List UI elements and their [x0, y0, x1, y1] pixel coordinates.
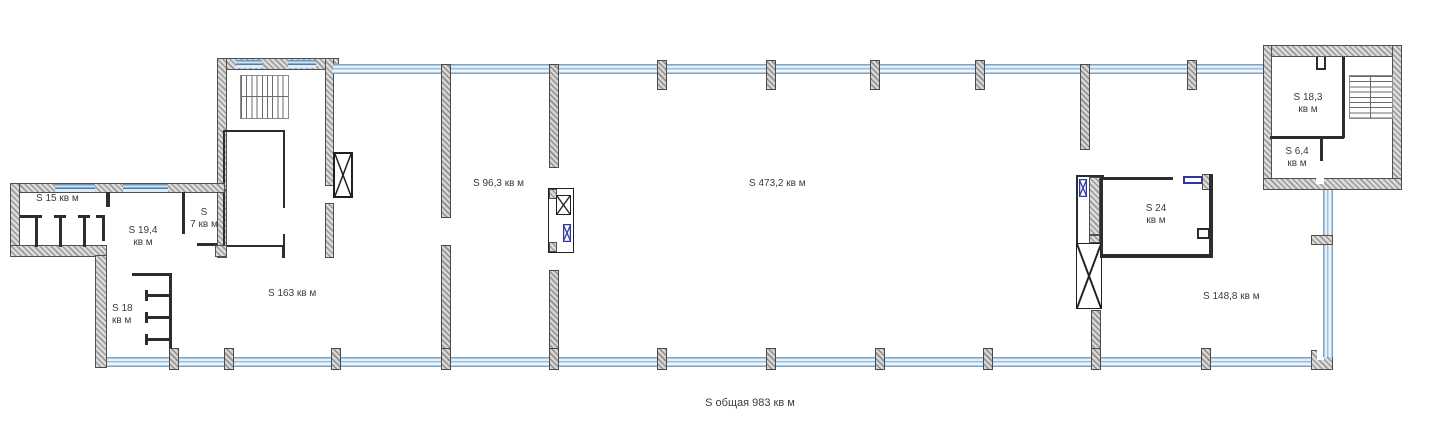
vestibule-door-opening — [281, 208, 287, 234]
vent-shaft-icon — [333, 152, 353, 198]
curtain-wall-bottom — [107, 357, 1333, 367]
room-label-s96: S 96,3 кв м — [473, 178, 524, 190]
wall-s18-top — [132, 273, 172, 276]
wall-rightblock-divider — [1342, 57, 1345, 138]
wall-wing-top — [10, 183, 225, 193]
column-bottom-2 — [224, 348, 234, 370]
wall-s7-corner — [215, 245, 227, 257]
column-bottom-9 — [983, 348, 993, 370]
stairs-left-landing-line — [241, 96, 288, 97]
room-label-s7: S 7 кв м — [188, 207, 220, 231]
room-label-s19-line1: S 19,4 — [118, 225, 168, 237]
stairs-left — [241, 76, 288, 118]
column-top-1 — [657, 60, 667, 90]
wall-s7-bottom — [197, 243, 217, 246]
wall-rightblock-top — [1263, 45, 1402, 57]
window-wing-1 — [55, 184, 95, 192]
niche-s24 — [1197, 228, 1210, 239]
plumbing-riser-icon — [1079, 179, 1087, 197]
partition-c-upper — [1080, 64, 1090, 150]
curtain-wall-right — [1323, 190, 1333, 357]
vestibule-wall-stub — [282, 246, 285, 258]
shaft-corner-hatch-bottom — [549, 242, 557, 252]
wall-s183-bottom — [1270, 136, 1344, 139]
stall-partition-3 — [83, 215, 86, 247]
room-label-s473: S 473,2 кв м — [749, 178, 806, 190]
wall-stairblock-right-lower — [325, 203, 334, 258]
column-bottom-6 — [657, 348, 667, 370]
column-s24block-cap — [1089, 235, 1100, 243]
column-top-2 — [766, 60, 776, 90]
column-bottom-4 — [441, 348, 451, 370]
window-stairblock-1 — [236, 60, 262, 68]
partition-a-upper — [441, 64, 451, 218]
room-label-s18-line1: S 18 — [112, 303, 133, 315]
column-top-3 — [870, 60, 880, 90]
room-label-s18: S 18 кв м — [112, 303, 133, 327]
room-label-s7-line2: 7 кв м — [188, 219, 220, 231]
stall-partition-1 — [35, 215, 38, 247]
column-bottom-5 — [549, 348, 559, 370]
column-bottom-8 — [875, 348, 885, 370]
wall-s24block-left — [1076, 175, 1078, 245]
room-label-s64-line2: кв м — [1272, 158, 1322, 170]
column-bottom-1 — [169, 348, 179, 370]
room-label-s15: S 15 кв м — [36, 193, 79, 205]
vestibule-room — [223, 130, 285, 247]
stairs-right — [1350, 76, 1392, 118]
wall-rightblock-left — [1263, 45, 1272, 190]
room-label-s24: S 24 кв м — [1125, 203, 1187, 227]
stall-partition-2 — [59, 215, 62, 247]
column-bottom-10 — [1091, 348, 1101, 370]
wall-rightblock-right — [1392, 45, 1402, 190]
door-notch-rightblock-bottom — [1316, 178, 1324, 184]
wall-rightblock-bottom — [1263, 178, 1402, 190]
floor-plan-canvas: S 15 кв м S 19,4 кв м S 7 кв м S 18 кв м… — [0, 0, 1443, 432]
total-area-label: S общая 983 кв м — [600, 397, 900, 409]
curtain-wall-top — [333, 64, 1263, 74]
window-stairblock-2 — [288, 60, 316, 68]
column-top-4 — [975, 60, 985, 90]
column-bottom-3 — [331, 348, 341, 370]
stairs-right-landing-line — [1370, 76, 1371, 118]
stall-right-wall — [102, 215, 105, 241]
room-label-s19: S 19,4 кв м — [118, 225, 168, 249]
service-shaft-middle — [548, 188, 574, 253]
room-label-s18-line2: кв м — [112, 315, 133, 327]
wall-s24-left — [1100, 177, 1103, 257]
room-label-s24-line1: S 24 — [1125, 203, 1187, 215]
niche-rightblock-top — [1316, 57, 1326, 70]
room-label-s183-line1: S 18,3 — [1276, 92, 1340, 104]
vent-shaft-icon — [556, 195, 571, 215]
room-label-s163: S 163 кв м — [268, 288, 316, 300]
room-label-s7-line1: S — [188, 207, 220, 219]
window-s24 — [1183, 176, 1203, 184]
wall-s24-top — [1100, 177, 1173, 180]
wall-s24-bottom — [1100, 254, 1213, 258]
room-label-s64: S 6,4 кв м — [1272, 146, 1322, 170]
wall-s24-right — [1209, 174, 1213, 258]
s18-stall-3 — [145, 338, 170, 341]
column-s24block — [1089, 177, 1100, 235]
column-bottom-7 — [766, 348, 776, 370]
plumbing-riser-icon — [563, 224, 571, 242]
vent-shaft-icon — [1076, 243, 1102, 309]
wall-stub-s15-s19 — [106, 192, 110, 207]
wall-west-lower — [95, 255, 107, 368]
partition-b-upper — [549, 64, 559, 168]
room-label-s19-line2: кв м — [118, 237, 168, 249]
column-bottom-11 — [1201, 348, 1211, 370]
column-top-5 — [1187, 60, 1197, 90]
pier-right-wall — [1311, 235, 1333, 245]
window-wing-2 — [123, 184, 168, 192]
s18-stall-2 — [145, 316, 170, 319]
room-label-s24-line2: кв м — [1125, 215, 1187, 227]
room-label-s183-line2: кв м — [1276, 104, 1340, 116]
s18-stall-1 — [145, 294, 170, 297]
wall-s7-left — [182, 192, 185, 234]
room-label-s148: S 148,8 кв м — [1203, 291, 1260, 303]
room-label-s183: S 18,3 кв м — [1276, 92, 1340, 116]
room-label-s64-line1: S 6,4 — [1272, 146, 1322, 158]
